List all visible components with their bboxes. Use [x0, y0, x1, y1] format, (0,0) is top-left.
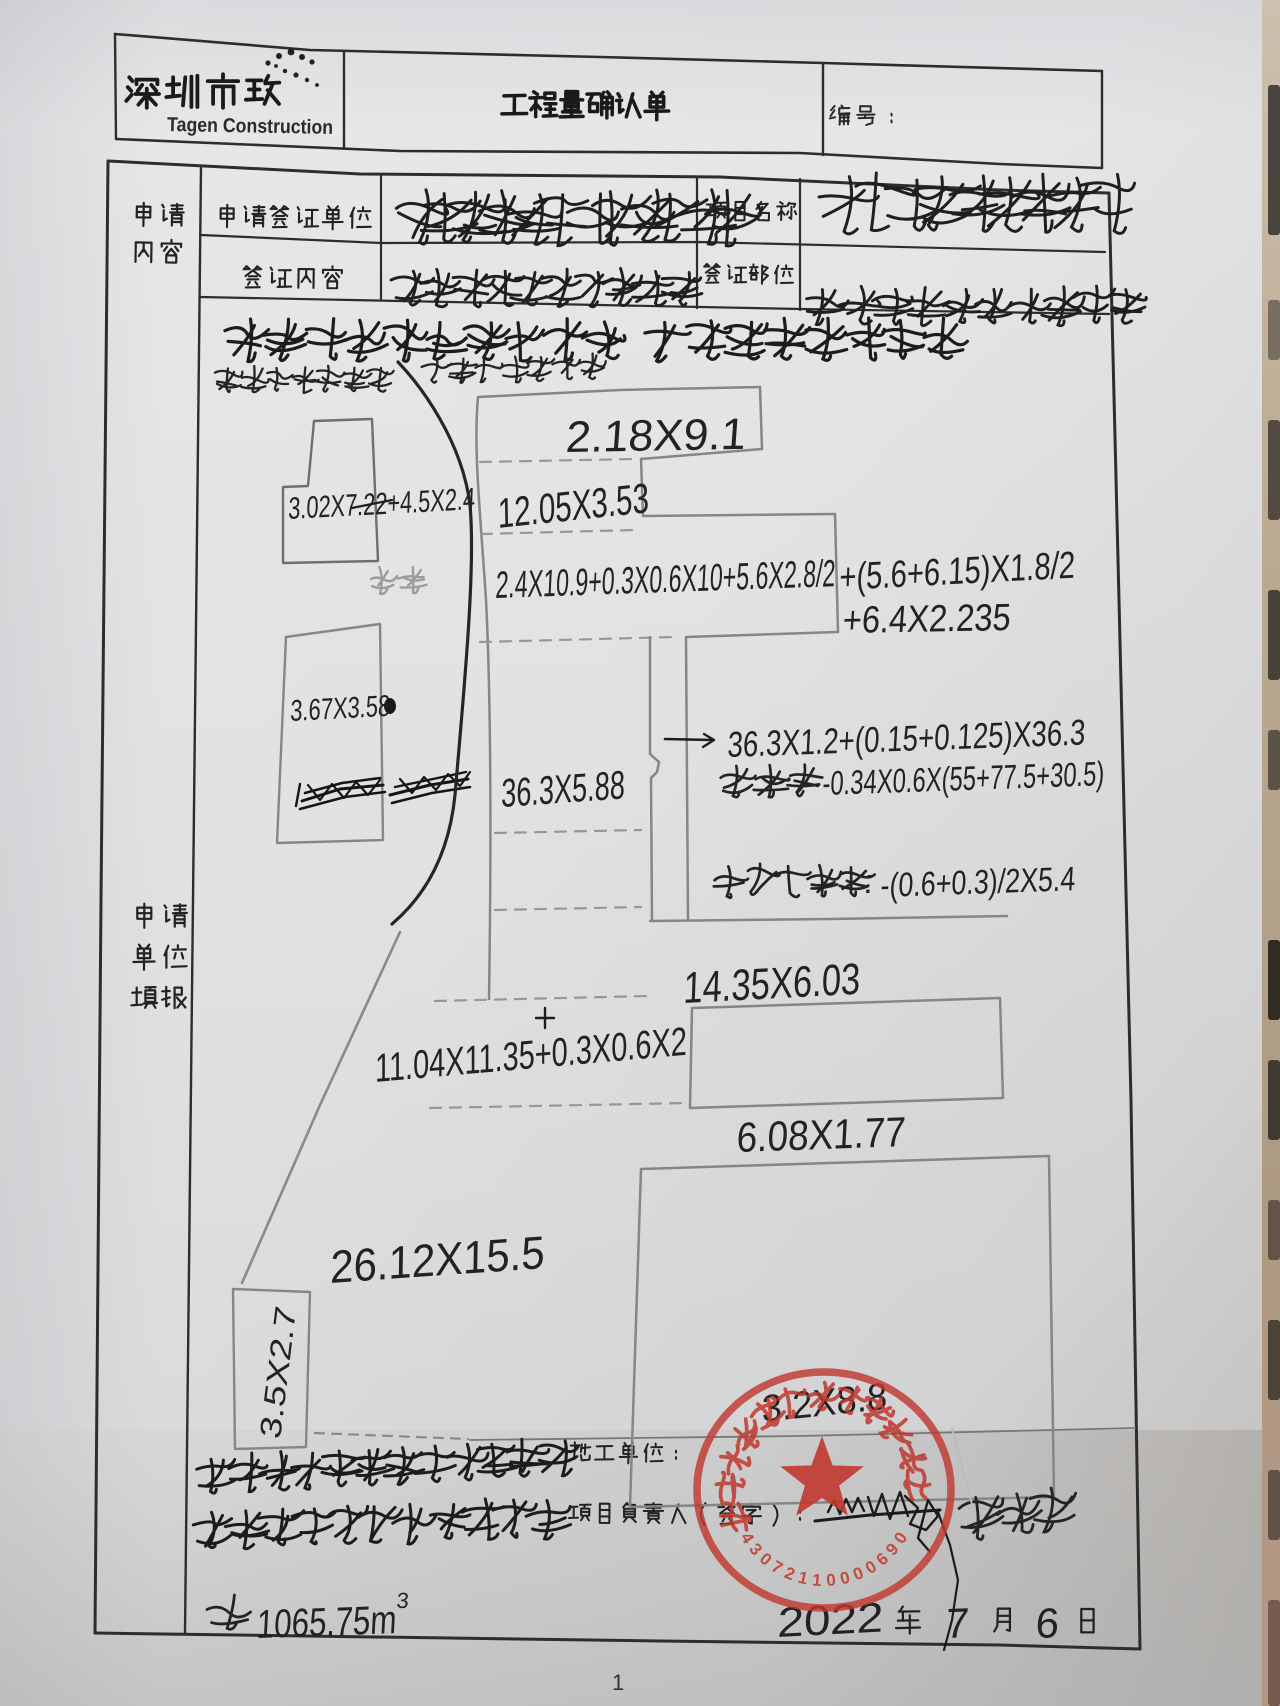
svg-text:6.08X1.77: 6.08X1.77 [736, 1108, 907, 1161]
svg-text:3.67X3.58: 3.67X3.58 [290, 690, 391, 728]
svg-text:2.18X9.1: 2.18X9.1 [564, 410, 747, 462]
svg-text:1065.75m: 1065.75m [256, 1598, 398, 1647]
svg-text:7: 7 [945, 1599, 971, 1647]
svg-text:1: 1 [612, 1670, 624, 1695]
svg-text:-(0.6+0.3)/2X5.4: -(0.6+0.3)/2X5.4 [880, 860, 1077, 905]
svg-text:3: 3 [396, 1588, 410, 1613]
svg-text:1: 1 [811, 1570, 822, 1590]
svg-text:6: 6 [1035, 1599, 1061, 1647]
svg-text:+6.4X2.235: +6.4X2.235 [841, 597, 1012, 642]
svg-text:0: 0 [826, 1570, 837, 1590]
svg-text:Tagen Construction: Tagen Construction [167, 114, 333, 139]
svg-text:36.3X5.88: 36.3X5.88 [501, 763, 625, 816]
